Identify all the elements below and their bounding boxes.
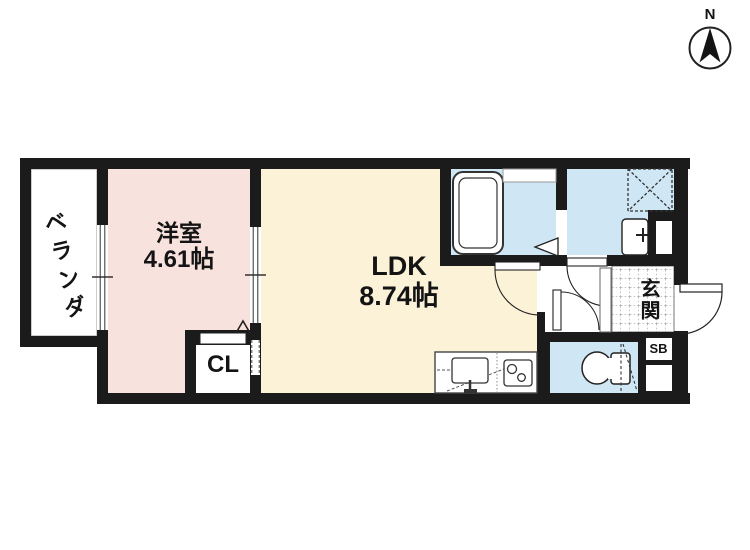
ldk-name: LDK (263, 251, 535, 281)
bathtub-icon (453, 172, 503, 254)
stove-icon (504, 360, 532, 386)
floor-plan: ベランダ 洋室 4.61帖 LDK 8.74帖 CL 玄関 SB N (0, 0, 750, 550)
sliding-door-pocket (251, 340, 260, 375)
bedroom-label: 洋室 4.61帖 (110, 221, 248, 274)
entrance-door (680, 284, 722, 334)
entrance-label: 玄関 (634, 271, 662, 329)
kitchen-counter (435, 352, 537, 393)
bedroom-size: 4.61帖 (110, 247, 248, 274)
closet-door (200, 333, 246, 344)
bath-counter (503, 169, 556, 182)
ldk-label: LDK 8.74帖 (263, 251, 535, 311)
compass-north-label: N (700, 7, 720, 24)
washroom-niche (656, 221, 672, 254)
bedroom-name: 洋室 (110, 221, 248, 247)
washbasin-icon (622, 219, 650, 255)
genkan-step (600, 268, 611, 332)
shoe-box-label: SB (645, 342, 672, 357)
north-compass-icon (690, 28, 731, 69)
storage-box (646, 365, 672, 391)
ldk-size: 8.74帖 (263, 281, 535, 311)
closet-label: CL (196, 352, 250, 379)
